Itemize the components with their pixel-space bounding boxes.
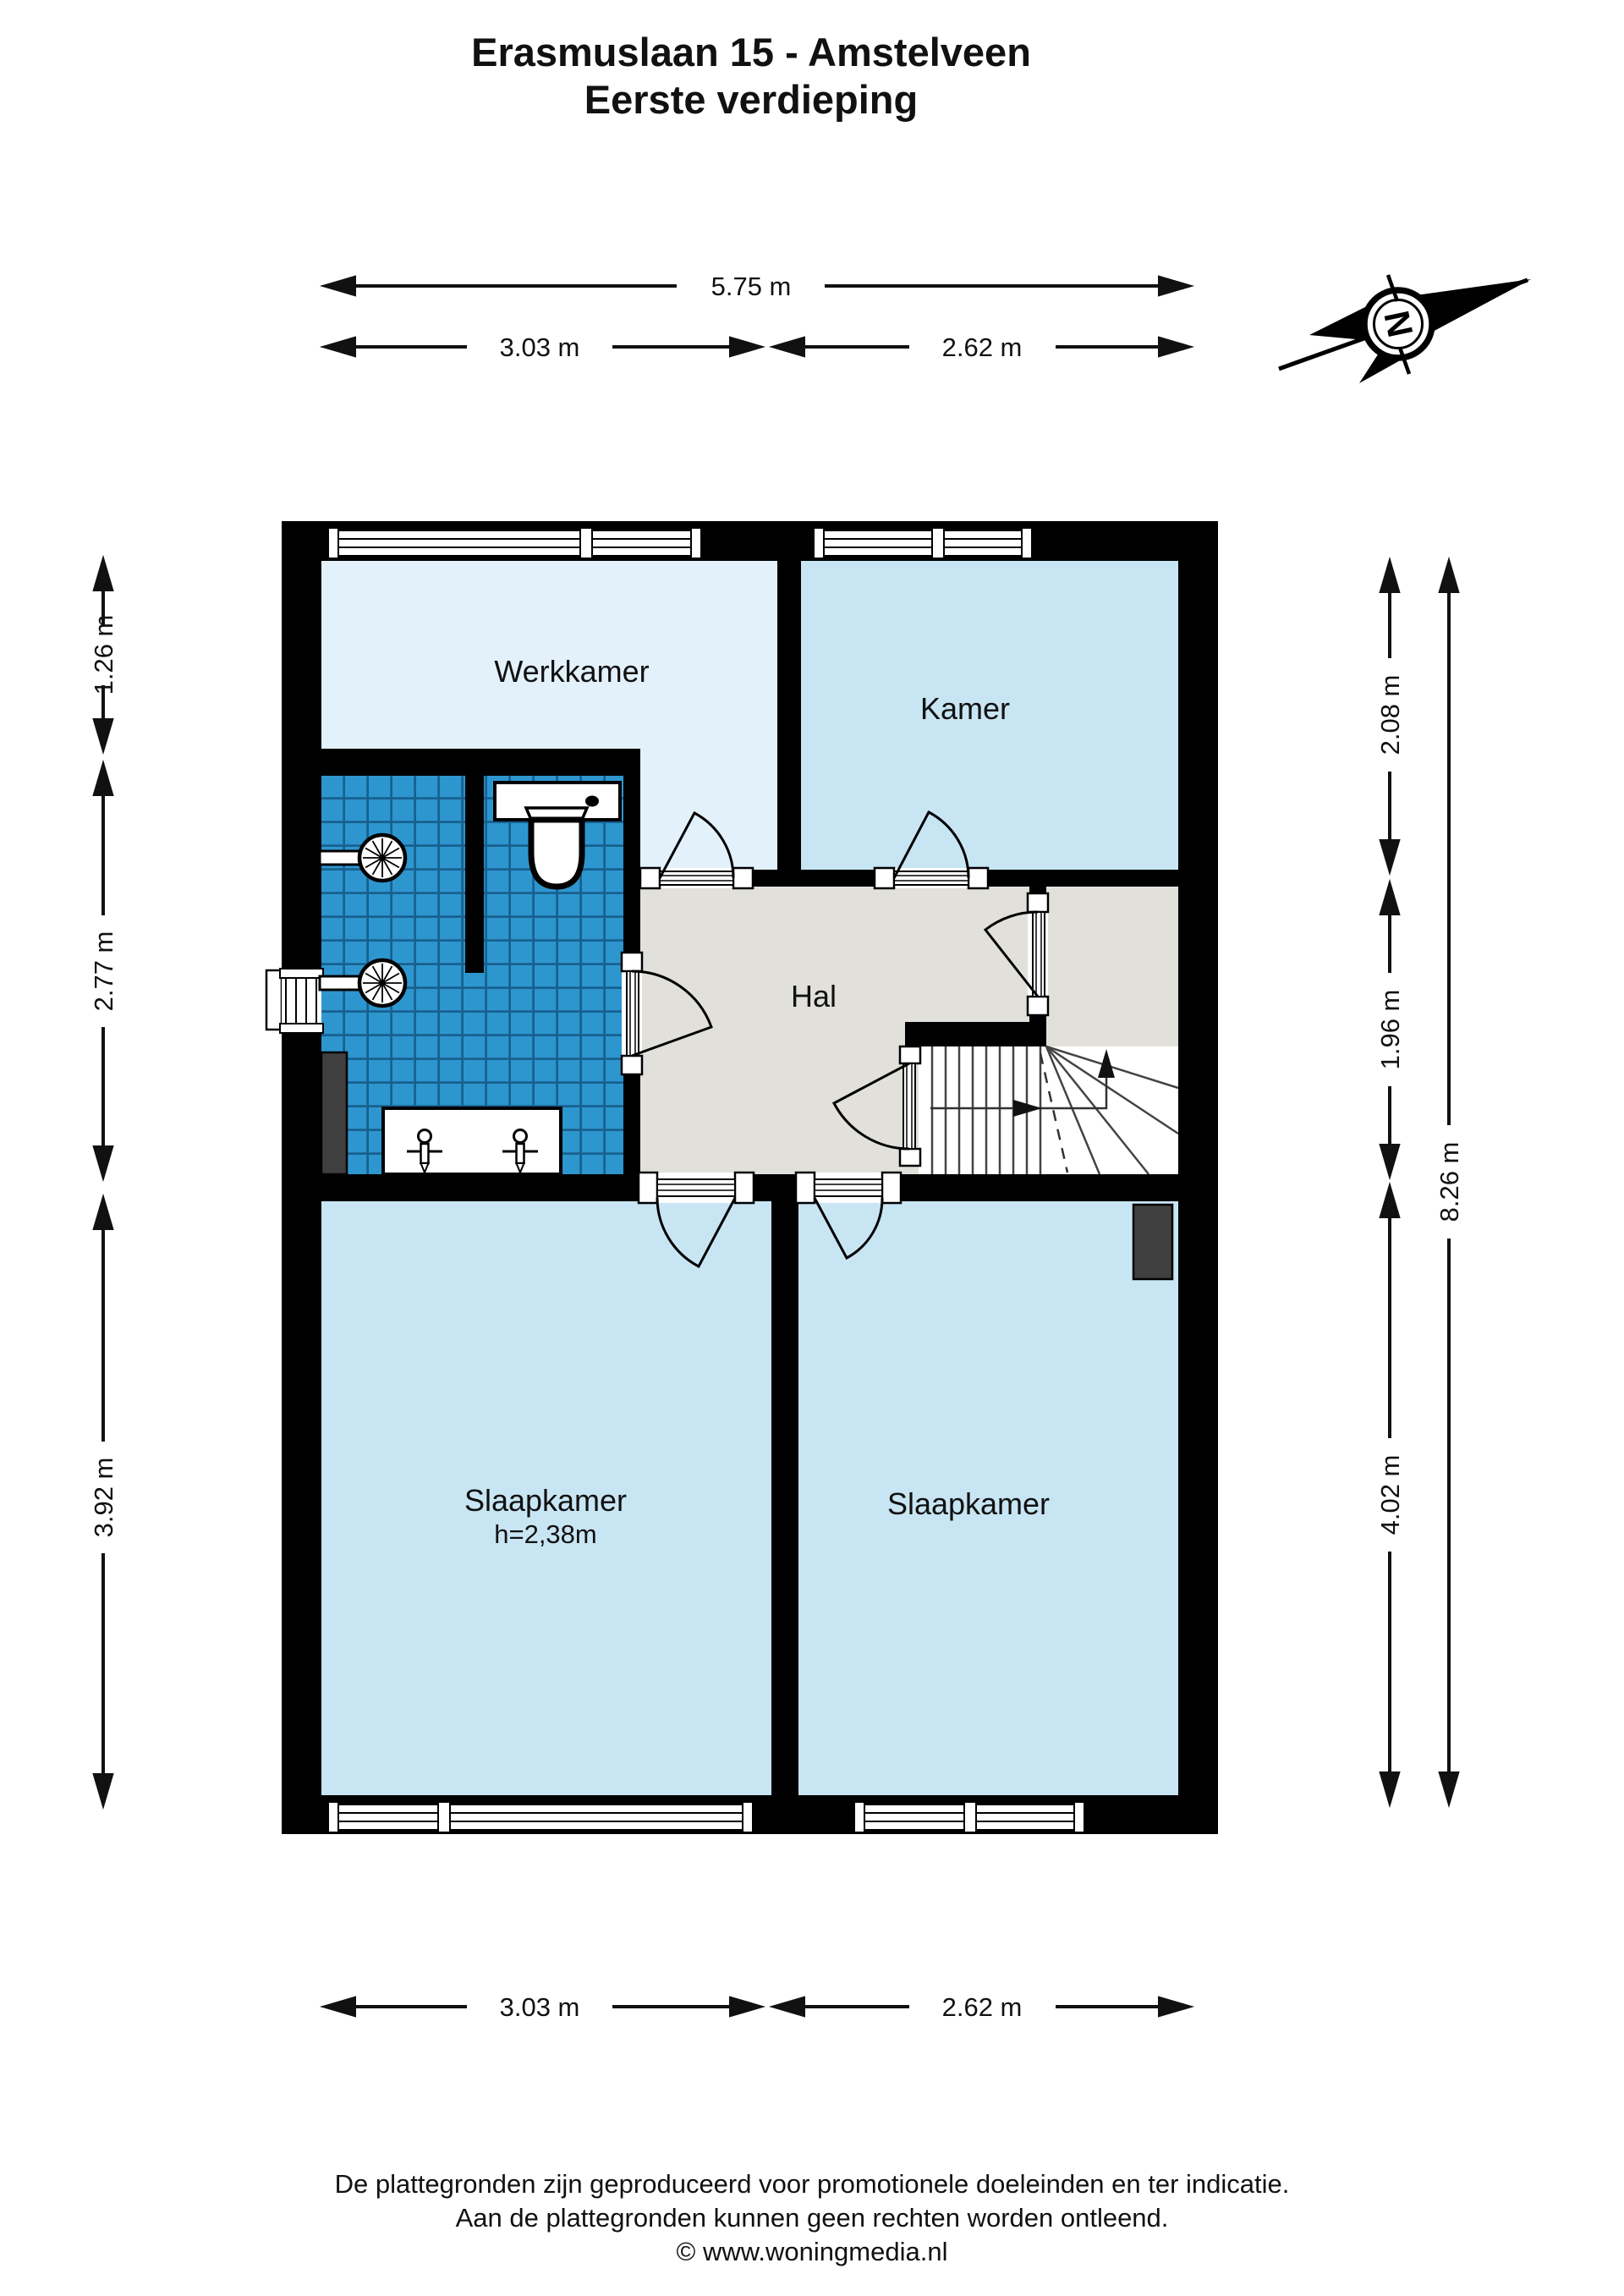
washbasin-counter [383,1108,561,1174]
wall-werkkamer-kamer [777,561,801,870]
room-height-note: h=2,38m [494,1519,597,1549]
staircase [919,1046,1178,1174]
compass-rose: N [1279,275,1531,383]
dim-label-right-lower: 4.02 m [1375,1455,1405,1535]
disclaimer: De plattegronden zijn geproduceerd voor … [0,2167,1624,2269]
dim-label-top-total: 5.75 m [711,272,792,301]
landing-floor [1046,887,1178,1046]
floor-plan: Werkkamer Kamer Hal Slaapkamer h=2,38m S… [266,521,1218,1834]
floorplan-drawing: Werkkamer Kamer Hal Slaapkamer h=2,38m S… [0,0,1624,2296]
stairs-area [919,1046,1178,1174]
dim-label-right-upper: 2.08 m [1375,675,1405,755]
dim-label-right-middle: 1.96 m [1375,990,1405,1070]
dim-label-top-left: 3.03 m [500,332,580,362]
window-bathroom-left [266,969,323,1033]
room-label-werkkamer: Werkkamer [494,654,649,689]
dim-label-left-upper: 1.26 m [89,615,118,695]
dim-top-left: 3.03 m [326,332,760,362]
dim-top-total: 5.75 m [326,272,1188,301]
dim-label-bottom-left: 3.03 m [500,1992,580,2022]
page-title: Erasmuslaan 15 - Amstelveen Eerste verdi… [159,29,1343,124]
dim-label-left-middle: 2.77 m [89,931,118,1012]
window-slaapkamer-left [328,1802,753,1832]
title-line-floor: Eerste verdieping [159,76,1343,124]
radiator-bedroom [1133,1205,1172,1279]
window-werkkamer [328,528,701,558]
disclaimer-line-1: De plattegronden zijn geproduceerd voor … [0,2167,1624,2201]
dim-label-right-total: 8.26 m [1435,1142,1464,1222]
dim-label-bottom-right: 2.62 m [942,1992,1023,2022]
dim-left-upper: 1.26 m [89,561,118,749]
floorplan-page: Erasmuslaan 15 - Amstelveen Eerste verdi… [0,0,1624,2296]
dim-right-upper: 2.08 m [1375,563,1405,870]
radiator-bathroom [321,1052,347,1174]
dim-label-left-lower: 3.92 m [89,1458,118,1538]
wall-stairs-stub [905,1022,1046,1046]
wall-shower-partition [465,776,484,973]
toilet-bowl [531,820,582,887]
dim-left-middle: 2.77 m [89,766,118,1176]
dim-bottom-left: 3.03 m [326,1992,760,2022]
title-line-address: Erasmuslaan 15 - Amstelveen [159,29,1343,76]
dim-left-lower: 3.92 m [89,1200,118,1804]
dim-label-top-right: 2.62 m [942,332,1023,362]
room-label-slaapkamer-right: Slaapkamer [887,1486,1050,1521]
dim-bottom-right: 2.62 m [775,1992,1188,2022]
disclaimer-line-2: Aan de plattegronden kunnen geen rechten… [0,2201,1624,2235]
wall-bathroom-top [282,749,640,776]
room-label-slaapkamer-left: Slaapkamer [464,1483,627,1518]
window-kamer [814,528,1032,558]
window-slaapkamer-right [854,1802,1084,1832]
copyright-line: © www.woningmedia.nl [0,2235,1624,2269]
dim-right-middle: 1.96 m [1375,885,1405,1174]
dim-right-lower: 4.02 m [1375,1188,1405,1802]
room-label-kamer: Kamer [920,691,1010,726]
wall-bedroom-divider [771,1201,798,1795]
dim-top-right: 2.62 m [775,332,1188,362]
room-label-hal: Hal [791,979,837,1013]
dim-right-total: 8.26 m [1435,563,1464,1802]
cistern-button [585,796,599,807]
